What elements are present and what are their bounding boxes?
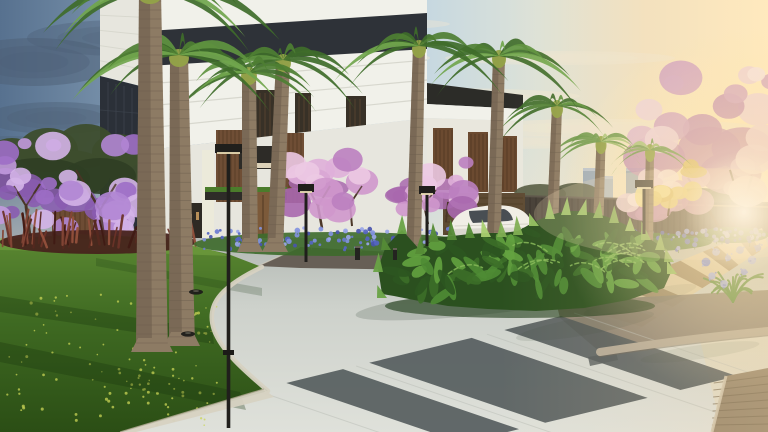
sun-glare [500, 0, 768, 432]
rendering-stage: Architectural rendering: residential tow… [0, 0, 768, 432]
architectural-rendering [0, 0, 768, 432]
